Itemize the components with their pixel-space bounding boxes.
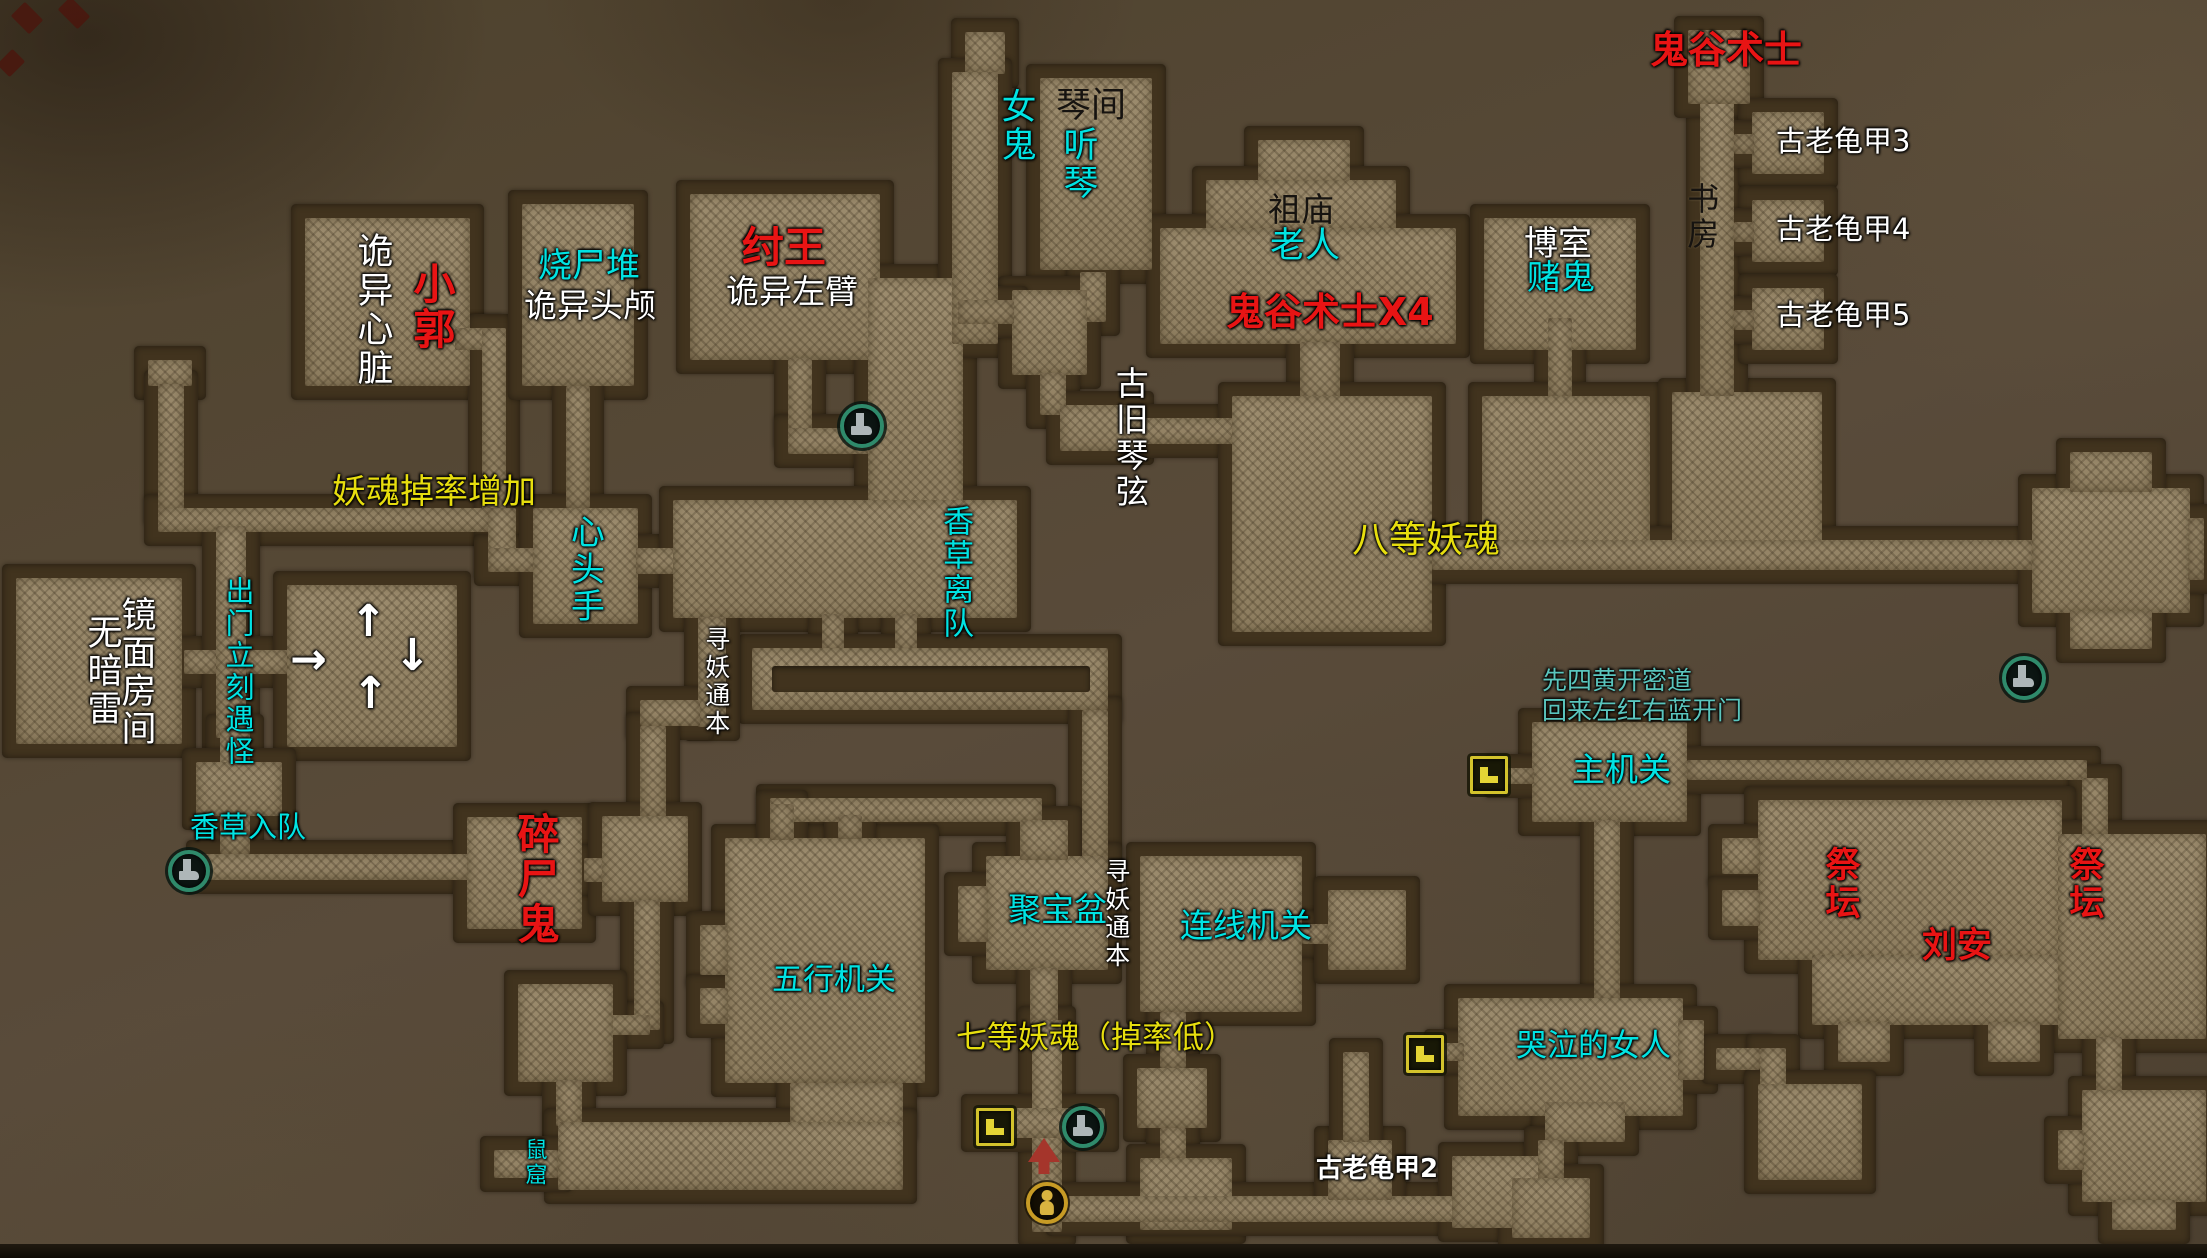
map-label: 古老龟甲4 bbox=[1776, 214, 1910, 245]
boot-icon bbox=[1062, 1106, 1104, 1148]
map-label: 博室 bbox=[1524, 226, 1592, 262]
map-label: 刘安 bbox=[1922, 928, 1992, 965]
map-label: 听琴 bbox=[1058, 126, 1095, 202]
arrow-up-icon bbox=[1026, 1138, 1062, 1174]
map-label: 先四黄开密道 bbox=[1542, 668, 1692, 695]
map-label: 书房 bbox=[1684, 182, 1718, 252]
map-label: 琴间 bbox=[1056, 88, 1126, 125]
map-label: 诡异头颅 bbox=[524, 288, 656, 323]
map-label: 寻妖通本 bbox=[702, 626, 729, 738]
map-label: 聚宝盆 bbox=[1008, 892, 1107, 927]
boot-icon bbox=[2002, 656, 2046, 700]
map-label: 古老龟甲5 bbox=[1776, 300, 1910, 331]
map-label: 女鬼 bbox=[996, 88, 1033, 164]
map-label: 赌鬼 bbox=[1527, 260, 1595, 296]
map-label: 妖魂掉率增加 bbox=[332, 474, 536, 510]
map-label: 香草离队 bbox=[938, 505, 971, 641]
map-label: 无暗雷 bbox=[82, 614, 119, 728]
map-label: → bbox=[290, 636, 327, 683]
map-label: 鬼谷术士 bbox=[1650, 30, 1802, 71]
map-label: 心头手 bbox=[566, 514, 602, 625]
bottom-bar bbox=[0, 1244, 2207, 1258]
map-label: 七等妖魂（掉率低） bbox=[956, 1022, 1235, 1055]
map-label: 主机关 bbox=[1572, 752, 1671, 787]
stairs-icon bbox=[1470, 756, 1508, 794]
map-label: 祖庙 bbox=[1268, 192, 1334, 227]
map-label: 烧尸堆 bbox=[538, 248, 640, 284]
map-label: 香草入队 bbox=[190, 812, 306, 843]
map-label: 连线机关 bbox=[1180, 908, 1312, 943]
map-label: 古老龟甲2 bbox=[1316, 1156, 1438, 1184]
boot-icon bbox=[840, 404, 884, 448]
map-label: ↓ bbox=[394, 632, 431, 679]
map-label: 鼠窟 bbox=[522, 1138, 546, 1188]
dungeon-map: 诡异心脏小郭烧尸堆诡异头颅纣王诡异左臂女鬼琴间听琴祖庙老人鬼谷术士X4博室赌鬼鬼… bbox=[0, 0, 2207, 1258]
boot-icon bbox=[168, 850, 210, 892]
map-label: 古老龟甲3 bbox=[1776, 126, 1910, 157]
map-label: 祭坛 bbox=[2064, 846, 2101, 922]
person-icon bbox=[1026, 1182, 1068, 1224]
map-label: 镜面房间 bbox=[116, 596, 153, 748]
map-label: 古旧琴弦 bbox=[1112, 366, 1147, 510]
map-label: 五行机关 bbox=[772, 964, 896, 997]
map-label: 小郭 bbox=[408, 262, 453, 352]
map-label: 出门立刻遇怪 bbox=[222, 576, 253, 768]
map-label: 祭坛 bbox=[1820, 846, 1857, 922]
map-label: 寻妖通本 bbox=[1102, 858, 1129, 970]
map-label: 碎尸鬼 bbox=[512, 812, 557, 947]
stairs-icon bbox=[976, 1108, 1014, 1146]
map-label: 诡异心脏 bbox=[352, 232, 391, 388]
map-label: 纣王 bbox=[742, 226, 826, 271]
map-label: ↑ bbox=[352, 670, 389, 717]
stairs-icon bbox=[1406, 1035, 1444, 1073]
map-label: 老人 bbox=[1270, 228, 1340, 265]
map-label: 鬼谷术士X4 bbox=[1226, 292, 1434, 333]
map-label: 诡异左臂 bbox=[726, 274, 858, 309]
map-label: 八等妖魂 bbox=[1352, 520, 1500, 560]
map-icons-layer bbox=[0, 0, 2207, 1258]
map-label: 哭泣的女人 bbox=[1516, 1030, 1671, 1063]
map-label: ↑ bbox=[350, 598, 387, 645]
map-label: 回来左红右蓝开门 bbox=[1542, 698, 1742, 725]
